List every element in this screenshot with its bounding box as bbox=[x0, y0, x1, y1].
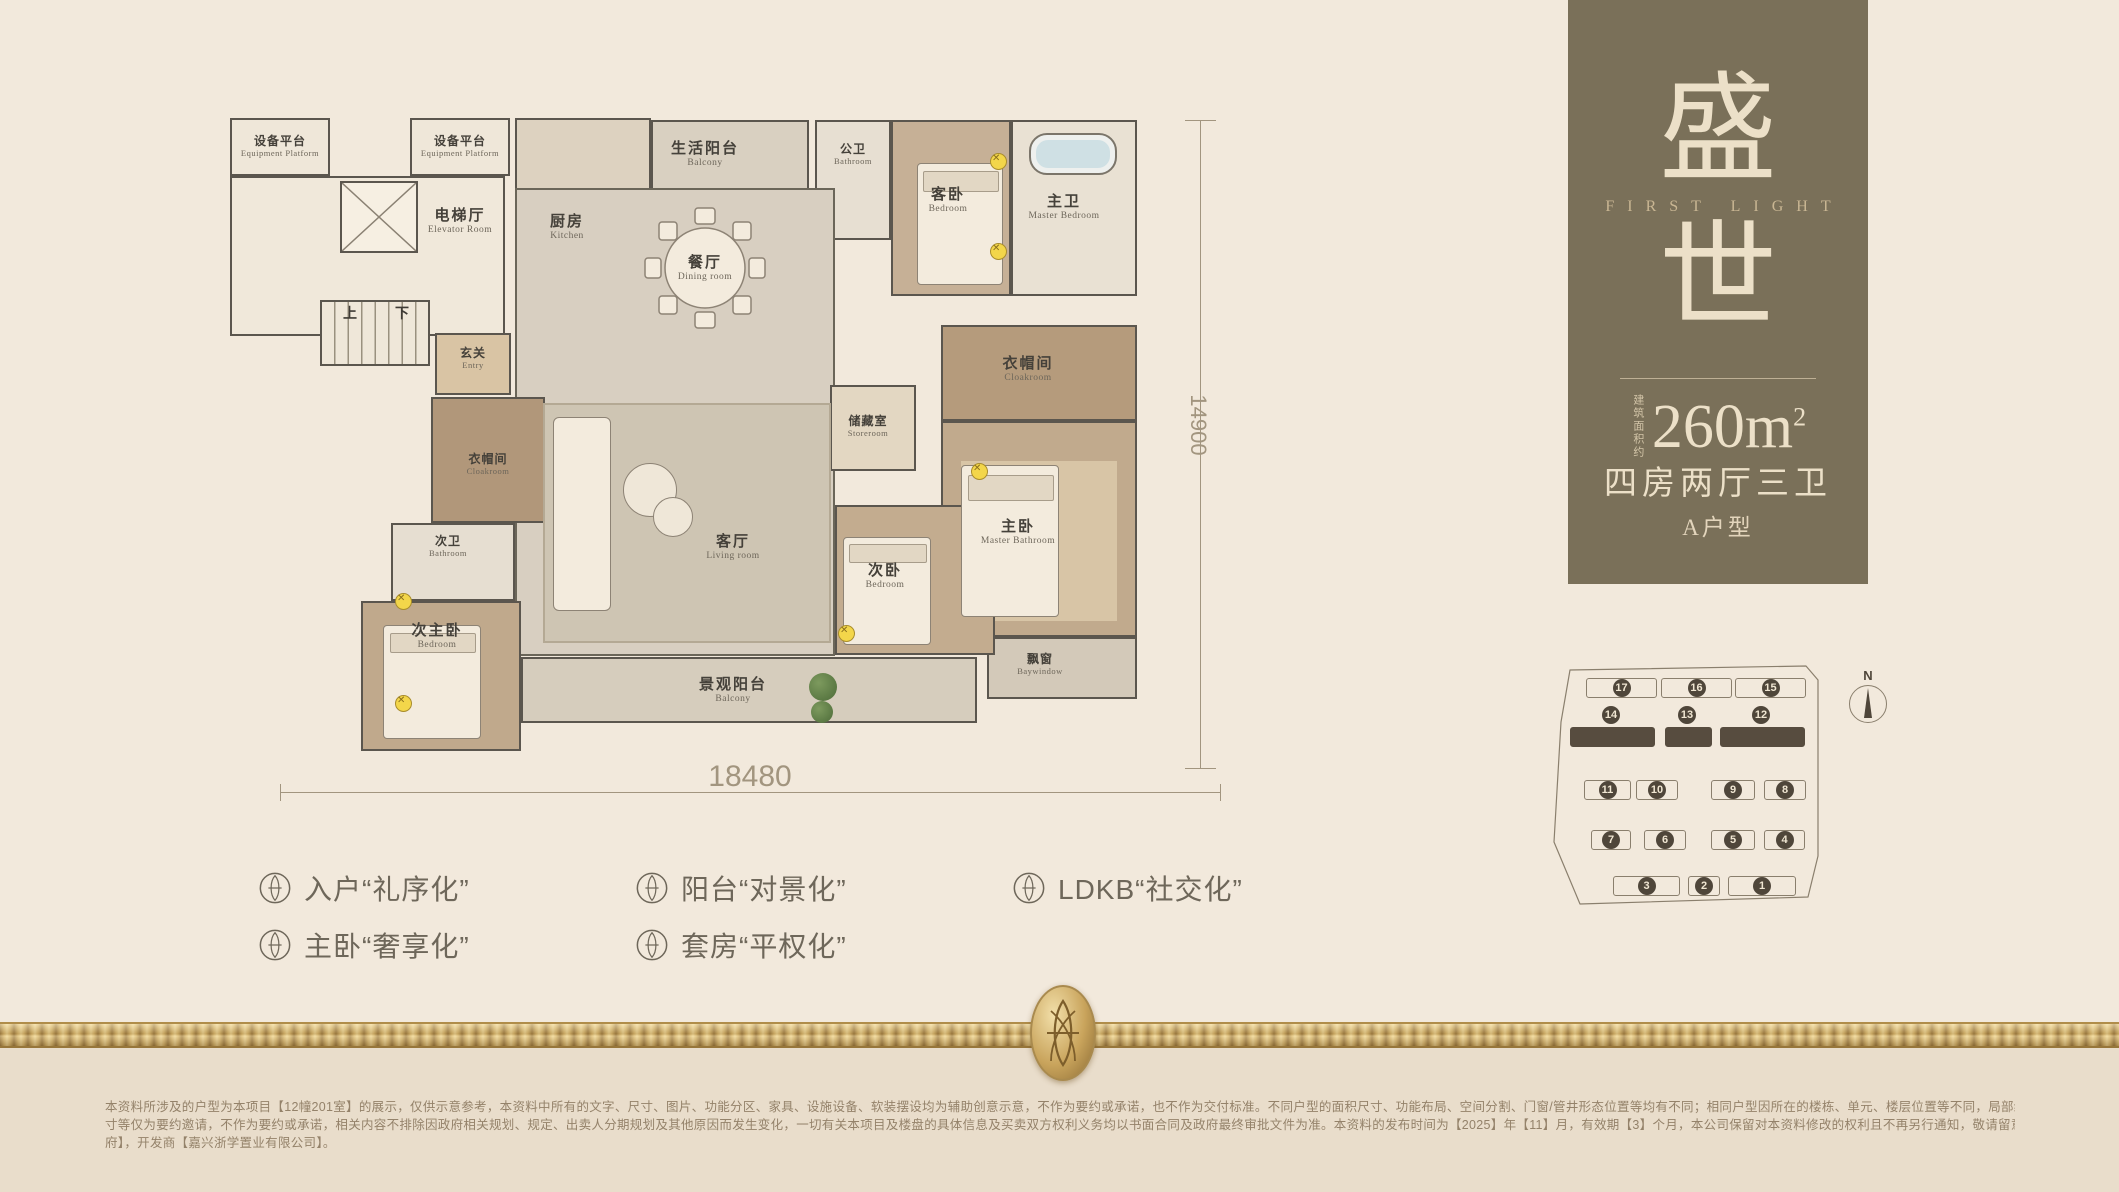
bedroom2-bed bbox=[843, 537, 931, 645]
dimension-tick-right-bottom bbox=[1185, 768, 1216, 769]
north-label: N bbox=[1848, 668, 1888, 683]
siteplan-building-17: 17 bbox=[1586, 678, 1657, 698]
area-value: 260m2 bbox=[1652, 396, 1806, 458]
siteplan-badge-13: 13 bbox=[1678, 706, 1696, 724]
guest-bed bbox=[917, 163, 1003, 285]
bathtub bbox=[1029, 133, 1117, 175]
siteplan-building-10: 10 bbox=[1636, 780, 1678, 800]
siteplan-building-4: 4 bbox=[1764, 830, 1805, 850]
gold-medallion-icon bbox=[1030, 985, 1096, 1081]
disclaimer-line-3: 府】，开发商【嘉兴浙学置业有限公司】。 bbox=[105, 1132, 2015, 1151]
seal-leaf-icon bbox=[1012, 871, 1046, 905]
room-storeroom bbox=[830, 385, 916, 471]
floorplan-poster: 上 下 设备平台Equipment Platform 设备平台Equipment… bbox=[0, 0, 2119, 1192]
ceiling-symbol-4 bbox=[838, 625, 855, 642]
rooms-description: 四房两厅三卫 bbox=[1568, 456, 1868, 504]
siteplan-building-15: 15 bbox=[1735, 678, 1806, 698]
feature-master-bedroom: 主卧“奢享化” bbox=[258, 925, 470, 965]
dimension-label-bottom: 18480 bbox=[690, 760, 810, 794]
seal-leaf-icon bbox=[258, 928, 292, 962]
unit-type-label: A户型 bbox=[1568, 508, 1868, 542]
seal-leaf-icon bbox=[635, 871, 669, 905]
master-bed bbox=[961, 465, 1059, 617]
seal-leaf-icon bbox=[635, 928, 669, 962]
siteplan-building-2: 2 bbox=[1688, 876, 1720, 896]
siteplan: 17 16 15 14 13 12 11 10 9 8 7 6 5 4 3 2 … bbox=[1548, 660, 1893, 912]
brand-panel: 盛 FIRST LIGHT 世 建筑面积约 260m2 四房两厅三卫 A户型 bbox=[1568, 0, 1868, 584]
dimension-label-right: 14900 bbox=[1185, 389, 1211, 461]
dining-table bbox=[643, 206, 767, 330]
second-master-bed bbox=[383, 625, 481, 739]
room-left-cloakroom bbox=[431, 397, 545, 523]
stair-up-label: 上 bbox=[343, 303, 357, 323]
panel-divider bbox=[1620, 378, 1816, 379]
room-master-cloakroom bbox=[941, 325, 1137, 421]
siteplan-badge-14: 14 bbox=[1602, 706, 1620, 724]
north-compass-icon: N bbox=[1848, 668, 1888, 723]
ceiling-symbol-3 bbox=[971, 463, 988, 480]
ceiling-symbol-1 bbox=[990, 153, 1007, 170]
area-superscript: 2 bbox=[1793, 402, 1806, 431]
balcony-plant-2 bbox=[811, 701, 833, 723]
room-baywindow bbox=[987, 637, 1137, 699]
stair-down-label: 下 bbox=[395, 303, 409, 323]
siteplan-building-11: 11 bbox=[1584, 780, 1631, 800]
ceiling-symbol-5 bbox=[395, 593, 412, 610]
feature-ldkb: LDKB“社交化” bbox=[1012, 868, 1243, 908]
siteplan-badge-12: 12 bbox=[1752, 706, 1770, 724]
feature-entry: 入户“礼序化” bbox=[258, 868, 470, 908]
siteplan-building-13 bbox=[1665, 727, 1712, 747]
siteplan-building-12 bbox=[1720, 727, 1805, 747]
ceiling-symbol-6 bbox=[395, 695, 412, 712]
room-staircase bbox=[320, 300, 430, 366]
siteplan-building-1: 1 bbox=[1728, 876, 1796, 896]
dimension-tick-bottom-right bbox=[1220, 784, 1221, 801]
dimension-tick-right-top bbox=[1185, 120, 1216, 121]
siteplan-building-16: 16 bbox=[1661, 678, 1732, 698]
coffee-table-small bbox=[653, 497, 693, 537]
elevator-shaft-cross-icon bbox=[342, 183, 416, 251]
siteplan-building-14 bbox=[1570, 727, 1655, 747]
brand-char-top: 盛 bbox=[1568, 72, 1868, 190]
disclaimer-line-2: 寸等仅为要约邀请，不作为要约或承诺，相关内容不排除因政府相关规划、规定、出卖人分… bbox=[105, 1114, 2015, 1133]
room-entry bbox=[435, 333, 511, 395]
dimension-tick-bottom-left bbox=[280, 784, 281, 801]
sofa bbox=[553, 417, 611, 611]
siteplan-building-9: 9 bbox=[1711, 780, 1755, 800]
disclaimer-line-1: 本资料所涉及的户型为本项目【12幢201室】的展示，仅供示意参考，本资料中所有的… bbox=[105, 1096, 2015, 1115]
feature-balcony: 阳台“对景化” bbox=[635, 868, 847, 908]
siteplan-building-3: 3 bbox=[1613, 876, 1680, 896]
siteplan-building-8: 8 bbox=[1764, 780, 1806, 800]
siteplan-building-7: 7 bbox=[1591, 830, 1631, 850]
seal-leaf-icon bbox=[258, 871, 292, 905]
room-life-balcony bbox=[651, 120, 809, 190]
ceiling-symbol-2 bbox=[990, 243, 1007, 260]
room-equipment-platform-left bbox=[230, 118, 330, 176]
feature-suite: 套房“平权化” bbox=[635, 925, 847, 965]
room-equipment-platform-right bbox=[410, 118, 510, 176]
balcony-plant-1 bbox=[809, 673, 837, 701]
brand-char-bottom: 世 bbox=[1568, 220, 1868, 338]
siteplan-building-5: 5 bbox=[1711, 830, 1755, 850]
room-view-balcony bbox=[521, 657, 977, 723]
floorplan-drawing: 上 下 设备平台Equipment Platform 设备平台Equipment… bbox=[155, 85, 1145, 770]
area-prefix-label: 建筑面积约 bbox=[1630, 394, 1646, 459]
room-second-bathroom bbox=[391, 523, 515, 601]
siteplan-building-6: 6 bbox=[1644, 830, 1686, 850]
elevator-shaft bbox=[340, 181, 418, 253]
